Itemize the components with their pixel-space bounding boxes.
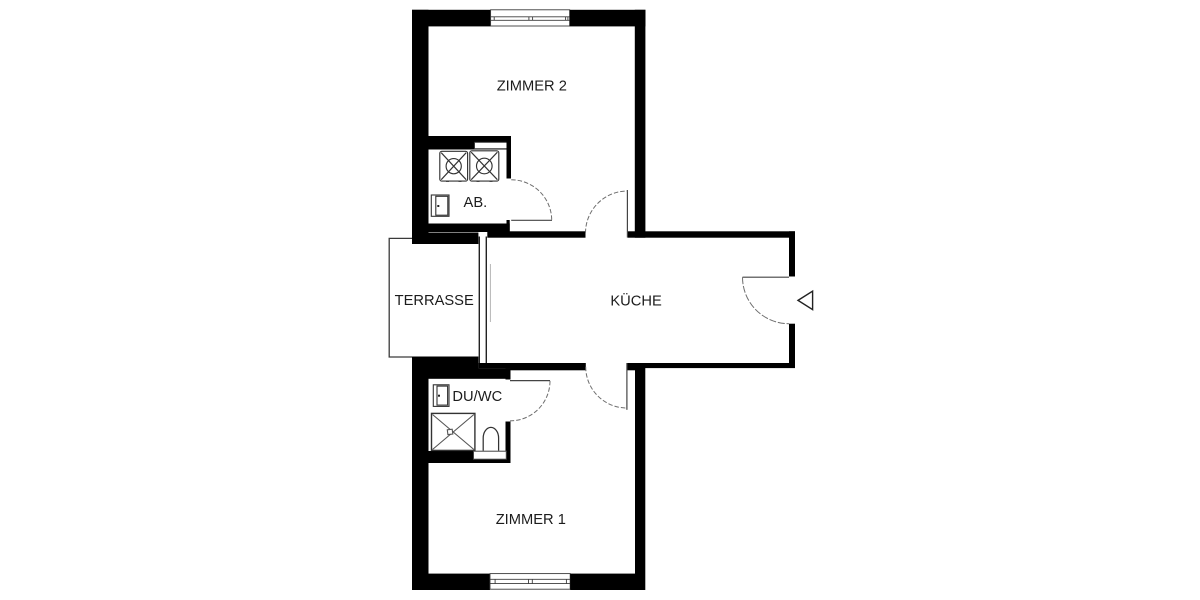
svg-text:ZIMMER 2: ZIMMER 2: [497, 78, 567, 94]
svg-text:ZIMMER 1: ZIMMER 1: [496, 512, 566, 528]
svg-text:TERRASSE: TERRASSE: [395, 293, 474, 309]
svg-text:KÜCHE: KÜCHE: [610, 292, 662, 310]
svg-text:DU/WC: DU/WC: [452, 389, 502, 405]
svg-text:AB.: AB.: [464, 195, 488, 211]
